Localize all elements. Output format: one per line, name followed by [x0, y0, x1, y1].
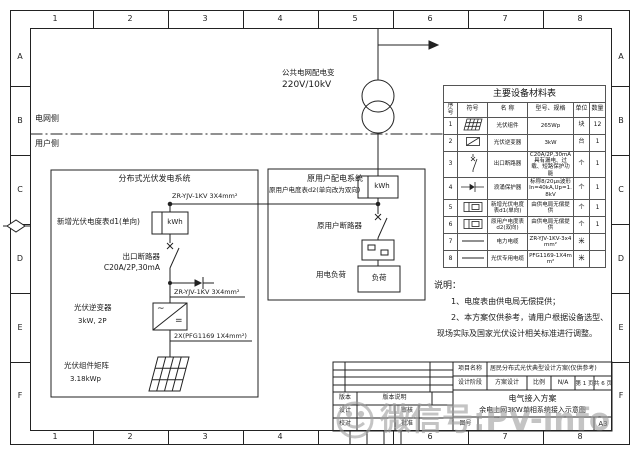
- pv-cable1-label: ZR-YJV-1KV 3X4mm²: [172, 193, 237, 200]
- row-label-left-b: B: [12, 116, 28, 125]
- cell-qty: [590, 251, 606, 268]
- inverter-label: 光伏逆变器: [74, 304, 112, 313]
- cell-name: 光伏组件: [488, 117, 528, 134]
- cell-qty: 1: [590, 200, 606, 217]
- user-meter-unit: kWh: [368, 182, 396, 190]
- col-label-bottom-2: 2: [122, 432, 138, 441]
- row-label-right-e: E: [613, 323, 629, 332]
- spd-arrowhead: [195, 280, 201, 286]
- cell-unit: 个: [574, 151, 590, 177]
- transformer-name-label: 公共电网配电变: [282, 69, 335, 78]
- cell-no: 2: [444, 134, 458, 151]
- col-label-bottom-3: 3: [197, 432, 213, 441]
- row-label-left-f: F: [12, 391, 28, 400]
- col-label-top-2: 2: [122, 14, 138, 23]
- pv-breaker-label-2: C20A/2P,30mA: [60, 264, 160, 273]
- cell-name: 光伏专用电缆: [488, 251, 528, 268]
- row-label-right-f: F: [613, 391, 629, 400]
- cell-qty: 1: [590, 217, 606, 234]
- cell-unit: 个: [574, 217, 590, 234]
- version-desc-label: 版本说明: [357, 395, 432, 402]
- note-line-1: 1、电度表由供电局无偿提供；: [451, 297, 560, 306]
- col-label-top-4: 4: [272, 14, 288, 23]
- bottom-ticks: [94, 431, 544, 445]
- table-row: 4 浪涌保护器 标称8/20μs波形 In=40kA,Up=1.8kV 个 1: [444, 178, 606, 200]
- cell-no: 3: [444, 151, 458, 177]
- cell-name: 出口断路器: [488, 151, 528, 177]
- cell-name: 新增光伏电度表d1(单向): [488, 200, 528, 217]
- breaker-icon: [458, 151, 488, 177]
- page-number: 第 1 页: [575, 381, 594, 387]
- table-row: 2 光伏逆变器 3kW 台 1: [444, 134, 606, 151]
- pv-meter-label: 新增光伏电度表d1(单向): [57, 218, 140, 227]
- pv-meter-unit: kWh: [162, 218, 188, 226]
- cell-spec: C20A/2P,30mA 具有漏电、过载、短路保护功能: [528, 151, 574, 177]
- energy-meter-icon: [458, 200, 488, 217]
- user-breaker-blade: [378, 218, 387, 238]
- cell-unit: 台: [574, 134, 590, 151]
- drawing-no-label: 图号: [453, 421, 478, 428]
- design-stage-label: 设计阶段: [453, 380, 487, 387]
- cell-unit: 米: [574, 251, 590, 268]
- user-breaker-label: 原用户断路器: [292, 222, 362, 231]
- page-total: 共 6 页: [594, 381, 612, 387]
- pv-cable2-label: ZR-YJV-1KV 3X4mm²: [174, 289, 239, 296]
- scale-value: N/A: [551, 380, 575, 387]
- cell-qty: 12: [590, 117, 606, 134]
- col-header-symbol: 符号: [458, 103, 488, 118]
- notes-title: 说明：: [434, 281, 461, 291]
- cell-spec: 标称8/20μs波形 In=40kA,Up=1.8kV: [528, 178, 574, 200]
- col-header-spec: 型号、规格: [528, 103, 574, 118]
- row-label-left-d: D: [12, 254, 28, 263]
- pv-array-spec: 3.18kWp: [70, 375, 101, 383]
- inverter-spec-label: 3kW, 2P: [78, 317, 107, 325]
- cell-name: 浪涌保护器: [488, 178, 528, 200]
- inverter-icon: [458, 134, 488, 151]
- col-label-top-8: 8: [572, 14, 588, 23]
- cell-unit: 米: [574, 234, 590, 251]
- equipment-table-title: 主要设备材料表: [444, 86, 606, 103]
- row-label-right-d: D: [613, 254, 629, 263]
- user-device-mark-1: [368, 245, 375, 250]
- col-label-top-5: 5: [347, 14, 363, 23]
- col-label-top-7: 7: [497, 14, 513, 23]
- surge-protector-icon: [458, 178, 488, 200]
- cell-no: 6: [444, 217, 458, 234]
- checker-label: 校对: [333, 421, 357, 428]
- project-name-value: 居民分布式光伏典型设计方案(仅供参考): [490, 366, 597, 373]
- energy-meter-icon: [458, 217, 488, 234]
- row-label-left-c: C: [12, 185, 28, 194]
- cell-spec: 265Wp: [528, 117, 574, 134]
- note-line-2: 2、本方案仅供参考，请用户根据设备选型、: [451, 313, 608, 322]
- row-label-left-e: E: [12, 323, 28, 332]
- table-row: 7 电力电缆 ZR-YJV-1KV-3x4mm² 米: [444, 234, 606, 251]
- user-device-box: [362, 240, 394, 260]
- cell-no: 7: [444, 234, 458, 251]
- col-header-unit: 单位: [574, 103, 590, 118]
- cell-qty: [590, 234, 606, 251]
- user-meter-label: 原用户电度表d2(单向改为双向): [269, 187, 360, 194]
- table-row: 8 光伏专用电缆 PFG1169-1X4mm² 米: [444, 251, 606, 268]
- row-label-right-c: C: [613, 185, 629, 194]
- col-header-name: 名 称: [488, 103, 528, 118]
- scale-label: 比例: [527, 380, 551, 387]
- centre-mark-diamond: [7, 220, 25, 232]
- right-ticks: [612, 87, 630, 363]
- table-row: 5 新增光伏电度表d1(单向) 由供电局无偿提供 个 1: [444, 200, 606, 217]
- pv-breaker-contact: [167, 243, 173, 249]
- col-label-bottom-1: 1: [47, 432, 63, 441]
- note-line-3: 现场实际及国家光伏设计相关标准进行调整。: [437, 329, 597, 338]
- cell-qty: 1: [590, 151, 606, 177]
- load-box-text: 负荷: [358, 274, 400, 283]
- table-row: 1 光伏组件 265Wp 块 12: [444, 117, 606, 134]
- cell-no: 1: [444, 117, 458, 134]
- cell-name: 光伏逆变器: [488, 134, 528, 151]
- cell-no: 8: [444, 251, 458, 268]
- user-side-label: 用户侧: [35, 139, 59, 148]
- cell-spec: PFG1169-1X4mm²: [528, 251, 574, 268]
- grid-feeder-arrowhead: [429, 41, 438, 49]
- row-label-right-a: A: [613, 52, 629, 61]
- cell-no: 4: [444, 178, 458, 200]
- cable-icon: [458, 234, 488, 251]
- load-label: 用电负荷: [316, 271, 346, 280]
- row-label-right-b: B: [613, 116, 629, 125]
- cell-spec: 由供电局无偿提供: [528, 217, 574, 234]
- col-header-no: 序号: [444, 103, 458, 118]
- schematic-sheet: 1 2 3 4 5 6 7 8 1 2 3 4 6 7 8 A B C D E …: [0, 0, 640, 453]
- top-ticks: [94, 11, 544, 29]
- pv-panel-icon: [458, 117, 488, 134]
- col-label-bottom-8: 8: [572, 432, 588, 441]
- project-name-label: 项目名称: [453, 366, 487, 373]
- cell-name: 电力电缆: [488, 234, 528, 251]
- col-header-qty: 数量: [590, 103, 606, 118]
- equipment-table: 主要设备材料表 序号 符号 名 称 型号、规格 单位 数量 1 光伏组件 265…: [443, 85, 606, 268]
- cell-unit: 块: [574, 117, 590, 134]
- cell-unit: 个: [574, 178, 590, 200]
- table-row: 6 原用户电度表d2(双向) 由供电局无偿提供 个 1: [444, 217, 606, 234]
- drawing-title-line2: 余电上网3KW单相系统接入示意图: [453, 406, 612, 414]
- pv-system-title: 分布式光伏发电系统: [51, 174, 258, 183]
- col-label-top-1: 1: [47, 14, 63, 23]
- col-label-bottom-6: 6: [422, 432, 438, 441]
- cell-name: 原用户电度表d2(双向): [488, 217, 528, 234]
- cable-icon: [458, 251, 488, 268]
- cell-no: 5: [444, 200, 458, 217]
- cell-qty: 1: [590, 178, 606, 200]
- version-label: 版本: [333, 395, 357, 402]
- sheet-size-value: A3: [594, 420, 612, 428]
- user-breaker-contact: [375, 214, 381, 220]
- cell-spec: 由供电局无偿提供: [528, 200, 574, 217]
- col-label-top-6: 6: [422, 14, 438, 23]
- pv-cable3-label: 2X(PFG1169 1X4mm²): [174, 333, 247, 340]
- cell-spec: ZR-YJV-1KV-3x4mm²: [528, 234, 574, 251]
- table-row: 3 出口断路器 C20A/2P,30mA 具有漏电、过载、短路保护功能 个 1: [444, 151, 606, 177]
- drawing-title-line1: 电气接入方案: [453, 394, 612, 403]
- inverter-dc-symbol: =: [175, 316, 183, 326]
- designer-label: 设计: [333, 408, 357, 415]
- cell-spec: 3kW: [528, 134, 574, 151]
- user-device-mark-2: [381, 250, 388, 255]
- pv-breaker-label-1: 出口断路器: [60, 253, 160, 262]
- grid-side-label: 电网侧: [35, 114, 59, 123]
- col-label-bottom-7: 7: [497, 432, 513, 441]
- transformer-voltage-label: 220V/10kV: [282, 80, 331, 90]
- cell-unit: 个: [574, 200, 590, 217]
- cell-qty: 1: [590, 134, 606, 151]
- transformer-coil-1: [362, 80, 394, 112]
- reviewer-label: 审核: [395, 408, 419, 415]
- row-label-left-a: A: [12, 52, 28, 61]
- design-stage-value: 方案设计: [487, 380, 527, 387]
- approver-label: 批准: [395, 421, 419, 428]
- col-label-top-3: 3: [197, 14, 213, 23]
- pv-breaker-blade: [170, 248, 179, 268]
- pv-array-cols: [157, 357, 182, 391]
- col-label-bottom-4: 4: [272, 432, 288, 441]
- inverter-ac-symbol: ~: [157, 304, 165, 314]
- transformer-coil-2: [362, 101, 394, 133]
- pv-array-label: 光伏组件矩阵: [64, 362, 109, 371]
